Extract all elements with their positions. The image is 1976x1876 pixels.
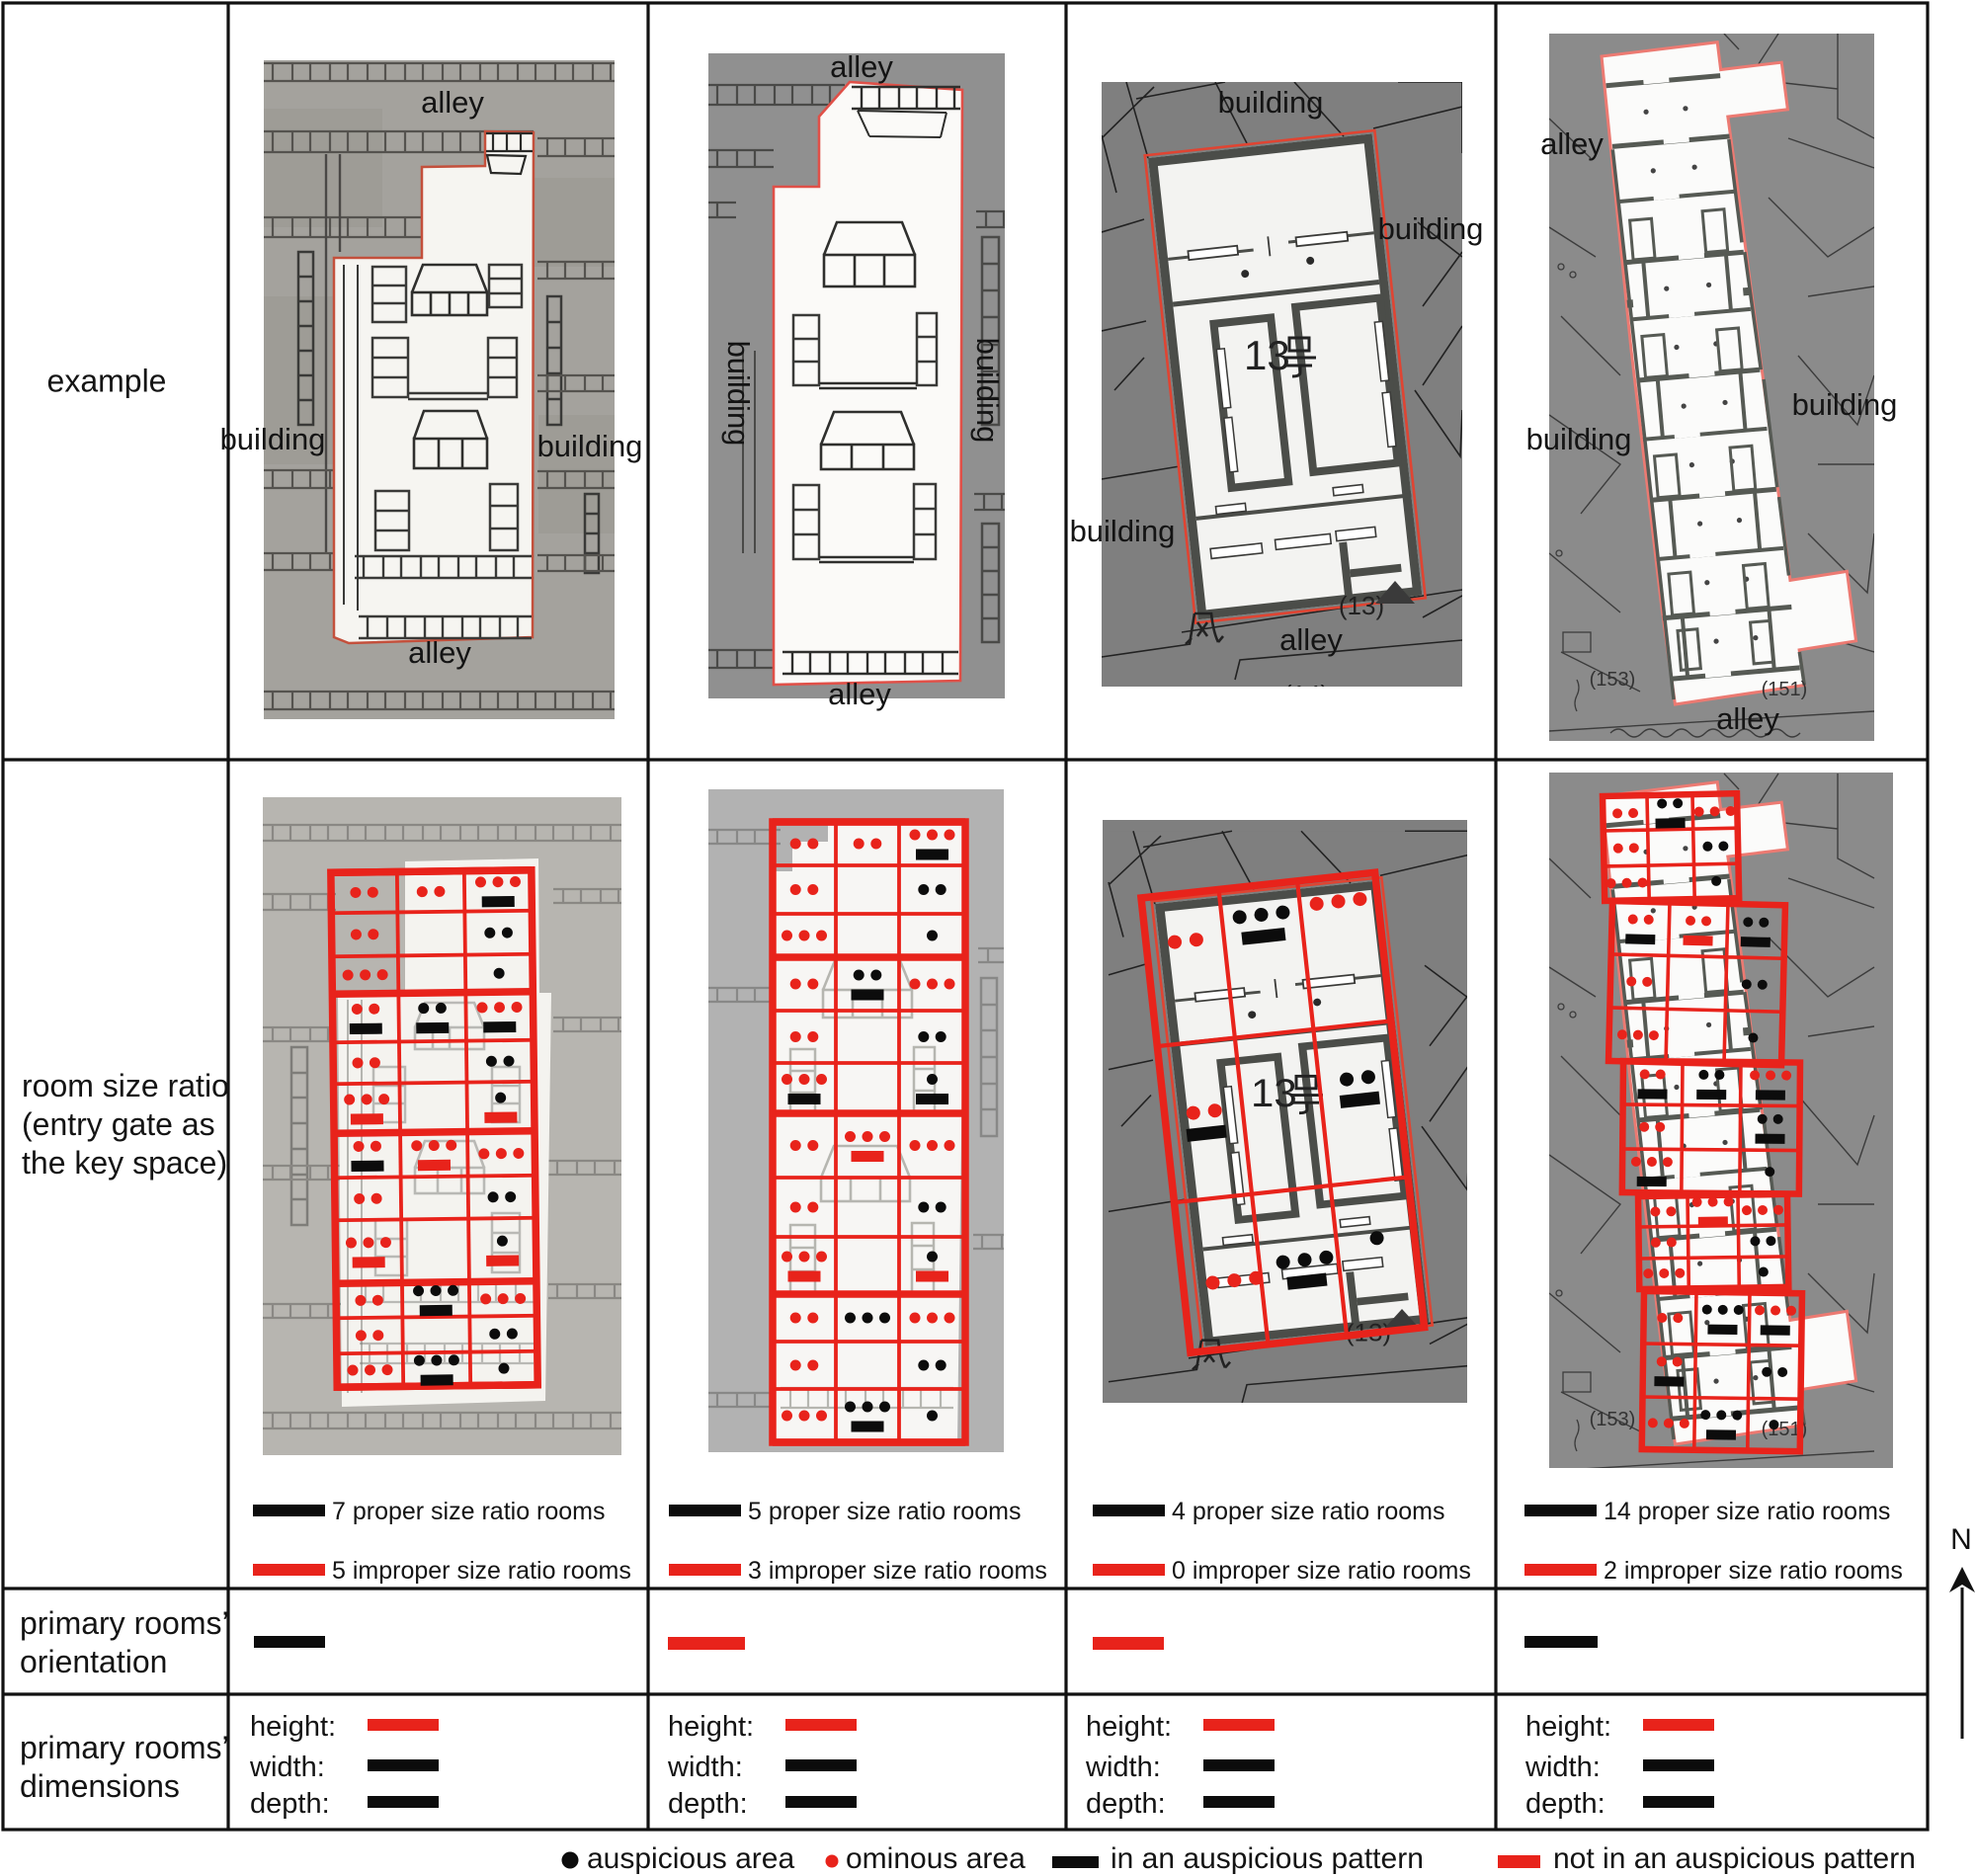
svg-text:13: 13 <box>1244 332 1290 378</box>
svg-text:N: N <box>1950 1523 1972 1556</box>
svg-text:(151): (151) <box>1762 679 1808 700</box>
svg-text:(153): (153) <box>1590 669 1636 691</box>
svg-text:(14): (14) <box>1283 680 1329 709</box>
svg-text:(13): (13) <box>1339 591 1384 620</box>
